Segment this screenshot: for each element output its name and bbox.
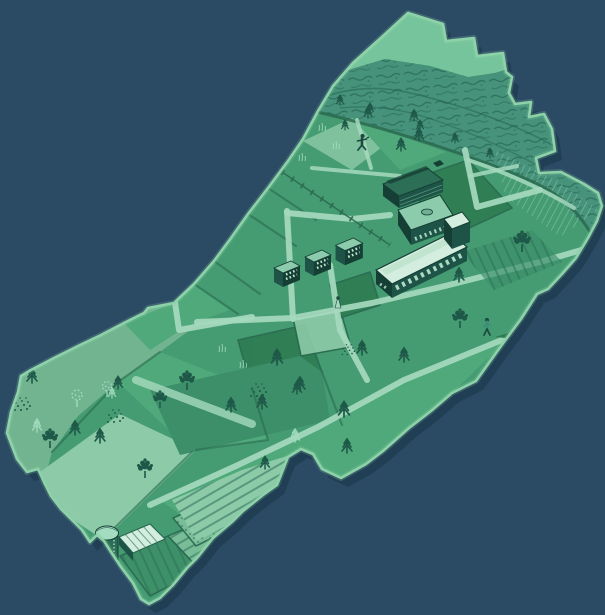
map-canvas [0, 0, 605, 615]
illustrated-farm-map [0, 0, 605, 615]
